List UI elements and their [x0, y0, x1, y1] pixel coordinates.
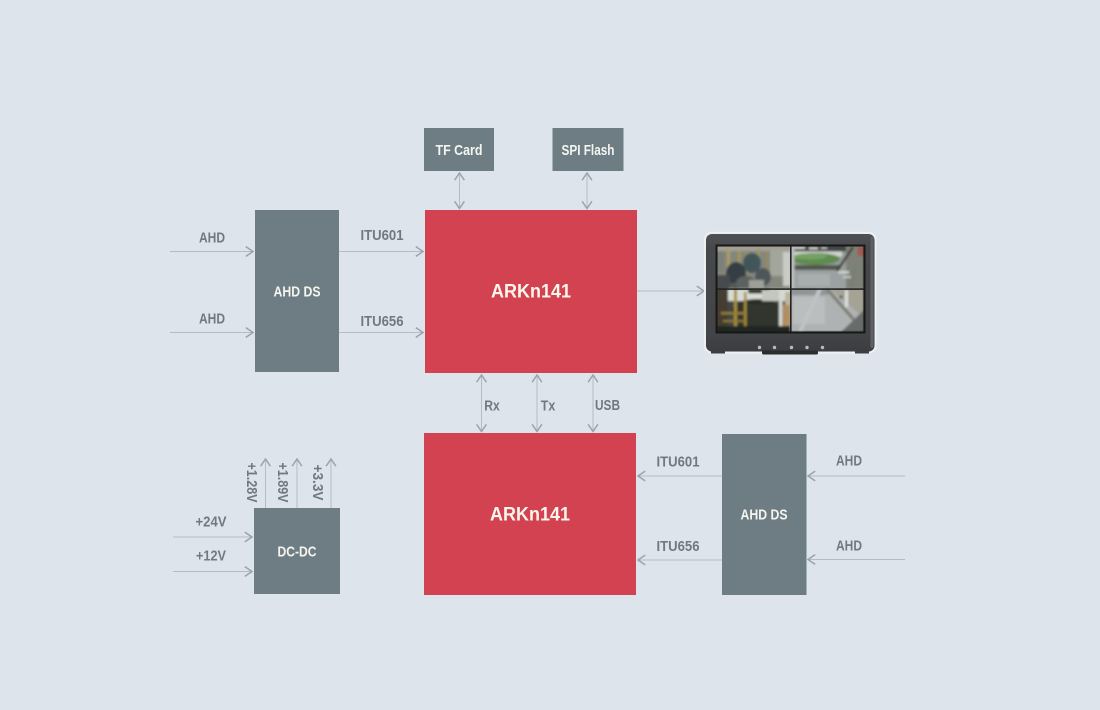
svg-text:SPI Flash: SPI Flash [562, 142, 615, 159]
svg-text:AHD: AHD [199, 311, 225, 328]
svg-text:ITU601: ITU601 [361, 227, 404, 244]
svg-text:USB: USB [595, 397, 620, 414]
svg-text:AHD DS: AHD DS [741, 507, 788, 524]
svg-text:Tx: Tx [541, 398, 556, 415]
svg-text:AHD DS: AHD DS [274, 284, 321, 301]
svg-text:AHD: AHD [836, 453, 862, 470]
svg-text:+3.3V: +3.3V [309, 465, 326, 501]
svg-text:ITU656: ITU656 [361, 313, 404, 330]
svg-text:+12V: +12V [196, 548, 226, 565]
svg-text:+1.89V: +1.89V [274, 463, 291, 503]
svg-text:AHD: AHD [199, 230, 225, 247]
svg-text:ARKn141: ARKn141 [491, 282, 571, 303]
svg-text:AHD: AHD [836, 538, 862, 555]
svg-text:ITU601: ITU601 [657, 454, 700, 471]
svg-text:+1.28V: +1.28V [243, 463, 260, 503]
svg-text:ARKn141: ARKn141 [490, 505, 570, 526]
svg-text:ITU656: ITU656 [657, 538, 700, 555]
svg-text:Rx: Rx [484, 398, 500, 415]
svg-text:TF Card: TF Card [436, 142, 483, 159]
svg-text:DC-DC: DC-DC [278, 544, 317, 561]
svg-text:+24V: +24V [196, 514, 227, 531]
